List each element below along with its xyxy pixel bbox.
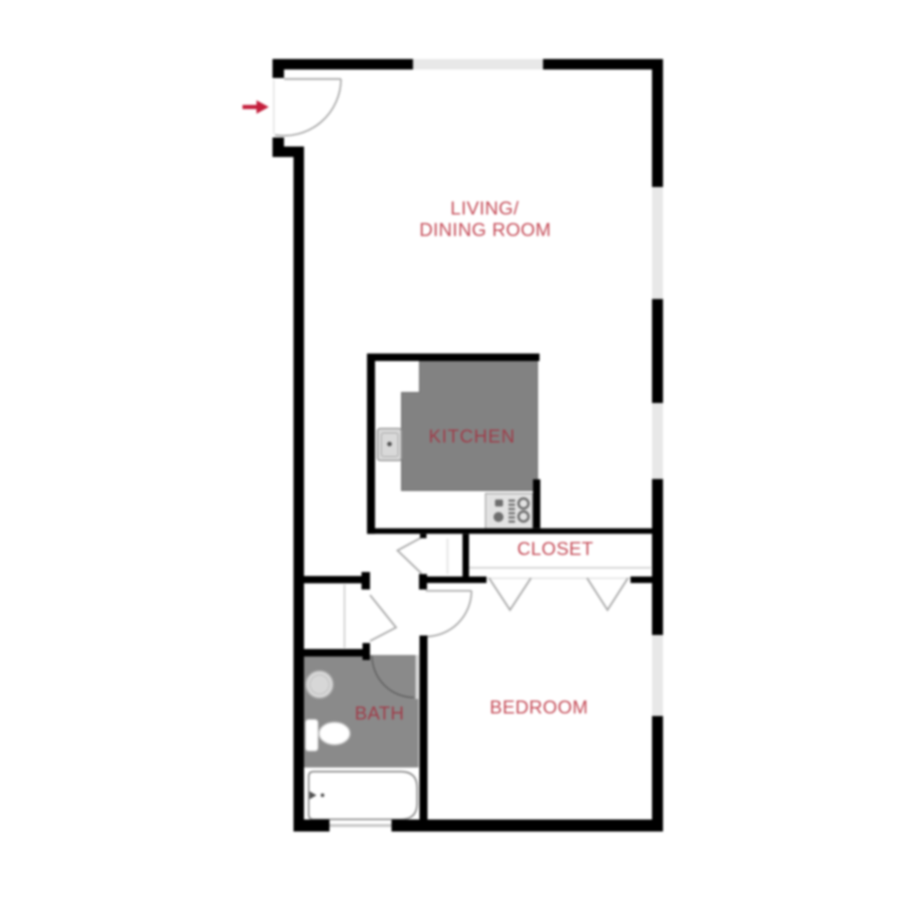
svg-text:BEDROOM: BEDROOM bbox=[490, 697, 588, 718]
svg-text:CLOSET: CLOSET bbox=[517, 538, 593, 559]
svg-text:KITCHEN: KITCHEN bbox=[429, 426, 516, 447]
svg-text:BATH: BATH bbox=[355, 703, 405, 724]
svg-text:DINING ROOM: DINING ROOM bbox=[419, 219, 551, 240]
svg-text:LIVING/: LIVING/ bbox=[450, 198, 519, 219]
